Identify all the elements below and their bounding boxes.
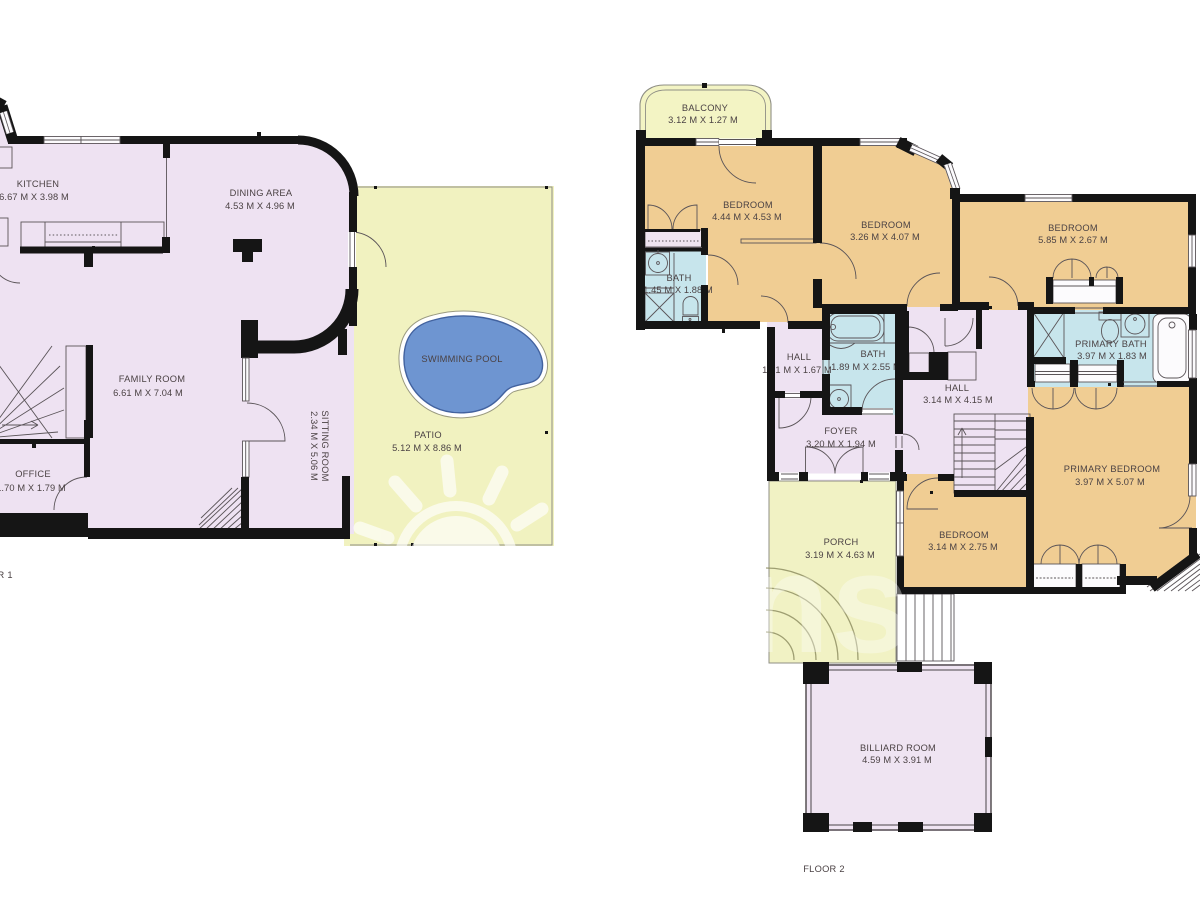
svg-text:6.61 M X 7.04 M: 6.61 M X 7.04 M <box>113 388 183 398</box>
svg-text:3.14 M X 2.75 M: 3.14 M X 2.75 M <box>928 542 998 552</box>
svg-text:PATIO: PATIO <box>414 430 442 440</box>
svg-text:BEDROOM: BEDROOM <box>1048 223 1098 233</box>
svg-text:2.34 M X 5.06 M: 2.34 M X 5.06 M <box>309 411 319 481</box>
svg-text:BEDROOM: BEDROOM <box>939 530 989 540</box>
svg-text:HALL: HALL <box>787 352 811 362</box>
svg-text:FOYER: FOYER <box>824 426 857 436</box>
svg-text:1.89 M X 2.55 M: 1.89 M X 2.55 M <box>831 362 901 372</box>
svg-text:plans: plans <box>535 524 911 683</box>
svg-text:PRIMARY BEDROOM: PRIMARY BEDROOM <box>1064 464 1160 474</box>
svg-text:5.85 M X 2.67 M: 5.85 M X 2.67 M <box>1038 235 1108 245</box>
svg-text:BALCONY: BALCONY <box>682 103 728 113</box>
svg-text:1.70 M X 1.79 M: 1.70 M X 1.79 M <box>0 483 66 493</box>
svg-text:3.14 M X 4.15 M: 3.14 M X 4.15 M <box>923 395 993 405</box>
svg-text:4.44 M X 4.53 M: 4.44 M X 4.53 M <box>712 212 782 222</box>
svg-text:KITCHEN: KITCHEN <box>17 179 60 189</box>
svg-text:6.67 M X 3.98 M: 6.67 M X 3.98 M <box>0 192 69 202</box>
svg-text:OFFICE: OFFICE <box>15 469 51 479</box>
svg-text:BEDROOM: BEDROOM <box>723 200 773 210</box>
svg-text:DINING AREA: DINING AREA <box>230 188 293 198</box>
svg-text:PRIMARY BATH: PRIMARY BATH <box>1075 339 1147 349</box>
svg-text:HALL: HALL <box>945 383 969 393</box>
svg-text:3.20 M X 1.94 M: 3.20 M X 1.94 M <box>806 439 876 449</box>
svg-text:SITTING ROOM: SITTING ROOM <box>320 410 330 481</box>
svg-text:3.12 M X 1.27 M: 3.12 M X 1.27 M <box>668 115 738 125</box>
svg-text:BATH: BATH <box>860 349 885 359</box>
svg-text:FLOOR 2: FLOOR 2 <box>803 864 845 874</box>
svg-text:4.53 M X 4.96 M: 4.53 M X 4.96 M <box>225 201 295 211</box>
svg-text:5.12 M X 8.86 M: 5.12 M X 8.86 M <box>392 443 462 453</box>
svg-text:SWIMMING POOL: SWIMMING POOL <box>421 354 502 364</box>
svg-text:BEDROOM: BEDROOM <box>861 220 911 230</box>
svg-text:4.59 M X 3.91 M: 4.59 M X 3.91 M <box>862 755 932 765</box>
svg-text:FLOOR 1: FLOOR 1 <box>0 570 13 580</box>
svg-text:BATH: BATH <box>666 273 691 283</box>
svg-text:FAMILY ROOM: FAMILY ROOM <box>119 374 185 384</box>
svg-text:3.97 M X 5.07 M: 3.97 M X 5.07 M <box>1075 477 1145 487</box>
svg-text:BILLIARD ROOM: BILLIARD ROOM <box>860 743 936 753</box>
svg-text:3.97 M X 1.83 M: 3.97 M X 1.83 M <box>1077 351 1147 361</box>
svg-text:3.26 M X 4.07 M: 3.26 M X 4.07 M <box>850 232 920 242</box>
